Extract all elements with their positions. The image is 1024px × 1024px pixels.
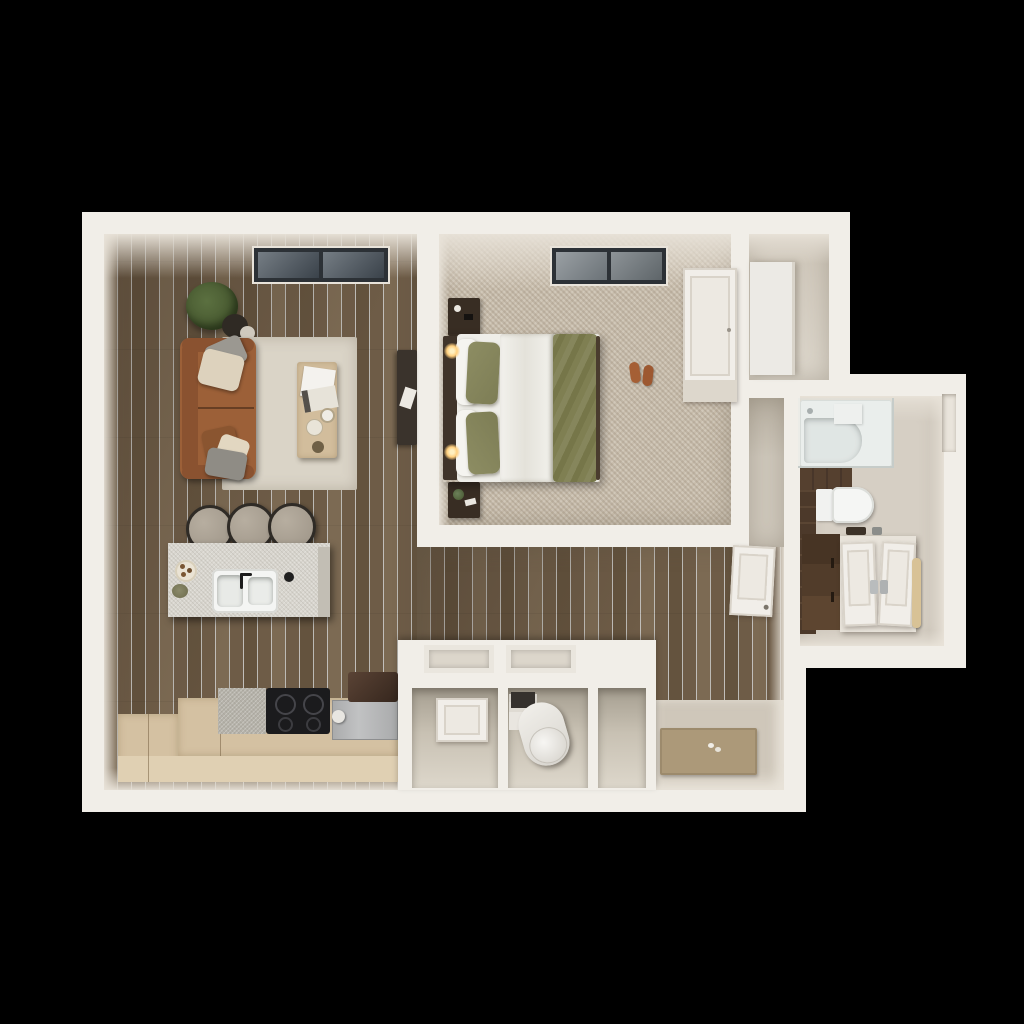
- utility-niche-storage: [598, 688, 646, 788]
- skylight-living-room-icon: [252, 246, 390, 284]
- closet-roof-panel: [506, 645, 576, 673]
- wardrobe: [683, 268, 737, 402]
- counter-seam: [148, 714, 149, 782]
- small-bowl: [312, 441, 324, 453]
- door-panel-inset: [444, 705, 480, 735]
- keys-on-mat: [708, 743, 714, 748]
- nightstand-item: [464, 498, 476, 506]
- sink-basin: [248, 577, 273, 605]
- closet-roof-panel: [424, 645, 494, 673]
- cookie: [180, 564, 185, 569]
- vanity-door-inset: [885, 549, 910, 606]
- cookie: [181, 572, 186, 577]
- skylight-pane: [258, 252, 319, 278]
- faucet-icon: [240, 573, 252, 576]
- herb-sprig: [172, 584, 188, 598]
- wall-face: [800, 630, 944, 646]
- vanity-counter-items: [846, 527, 866, 535]
- burner-icon: [303, 694, 324, 715]
- saucer-plate: [306, 419, 323, 436]
- vestibule-floor: [749, 398, 784, 547]
- vanity-counter-items: [872, 527, 882, 535]
- towel: [912, 558, 921, 628]
- bed-frame-edge: [596, 336, 600, 480]
- nightstand-south: [448, 482, 480, 518]
- floor-plan-render: [0, 0, 1024, 1024]
- wardrobe-side-face: [683, 380, 737, 402]
- bed: [443, 334, 600, 482]
- closet-door-panel: [436, 698, 488, 742]
- vanity-door-inset: [847, 550, 871, 607]
- toilet-cistern: [816, 489, 833, 521]
- disposal-button: [284, 572, 294, 582]
- door-handle-steel: [870, 580, 878, 594]
- nightstand-north: [448, 298, 480, 336]
- pillow-olive: [465, 411, 500, 475]
- bathroom-door-panel: [729, 545, 776, 617]
- wardrobe-door-inset: [690, 276, 730, 376]
- nightstand-plant: [453, 489, 464, 500]
- stone-slab: [218, 688, 266, 734]
- cooktop: [266, 688, 330, 734]
- sofa-backrest: [182, 342, 198, 475]
- keys-on-mat: [715, 747, 721, 752]
- toilet: [816, 487, 874, 523]
- vanity-wood-cabinet: [802, 534, 840, 630]
- burner-icon: [306, 717, 321, 732]
- wall-face: [749, 234, 829, 264]
- wardrobe-handle: [727, 328, 731, 332]
- canister: [332, 710, 345, 723]
- door-panel-inset: [737, 553, 768, 600]
- island-sink: [212, 569, 278, 613]
- cup: [320, 408, 335, 423]
- burner-icon: [278, 717, 293, 732]
- closet-column: [750, 262, 795, 375]
- shower-glass: [798, 398, 894, 468]
- vanity-sink-unit: [840, 536, 916, 632]
- wall-sconce-glow-icon: [444, 444, 460, 460]
- skylight-pane: [611, 252, 662, 280]
- cabinet-handle: [831, 558, 834, 568]
- duvet: [500, 334, 556, 482]
- skylight-pane: [556, 252, 607, 280]
- throw-blanket-olive: [553, 334, 597, 482]
- skylight-bedroom-icon: [550, 246, 668, 286]
- wall-sconce-glow-icon: [444, 343, 460, 359]
- counter-bottom-face: [178, 756, 398, 782]
- nightstand-item: [454, 305, 461, 312]
- sofa-seat-seam: [198, 407, 254, 409]
- entry-mat: [660, 728, 757, 775]
- cookie: [187, 568, 192, 573]
- cabinet-handle: [831, 592, 834, 602]
- island-side-face: [318, 547, 330, 617]
- burner-icon: [275, 694, 296, 715]
- door-handle: [764, 605, 769, 610]
- skylight-pane: [323, 252, 384, 278]
- toilet-bowl: [832, 487, 874, 523]
- door-handle-steel: [880, 580, 888, 594]
- nightstand-item: [464, 314, 473, 320]
- cookie-plate: [175, 560, 197, 582]
- range-top-dark: [348, 672, 398, 702]
- pillow-olive: [465, 341, 500, 405]
- wall-face: [104, 234, 119, 790]
- window-niche: [942, 394, 956, 452]
